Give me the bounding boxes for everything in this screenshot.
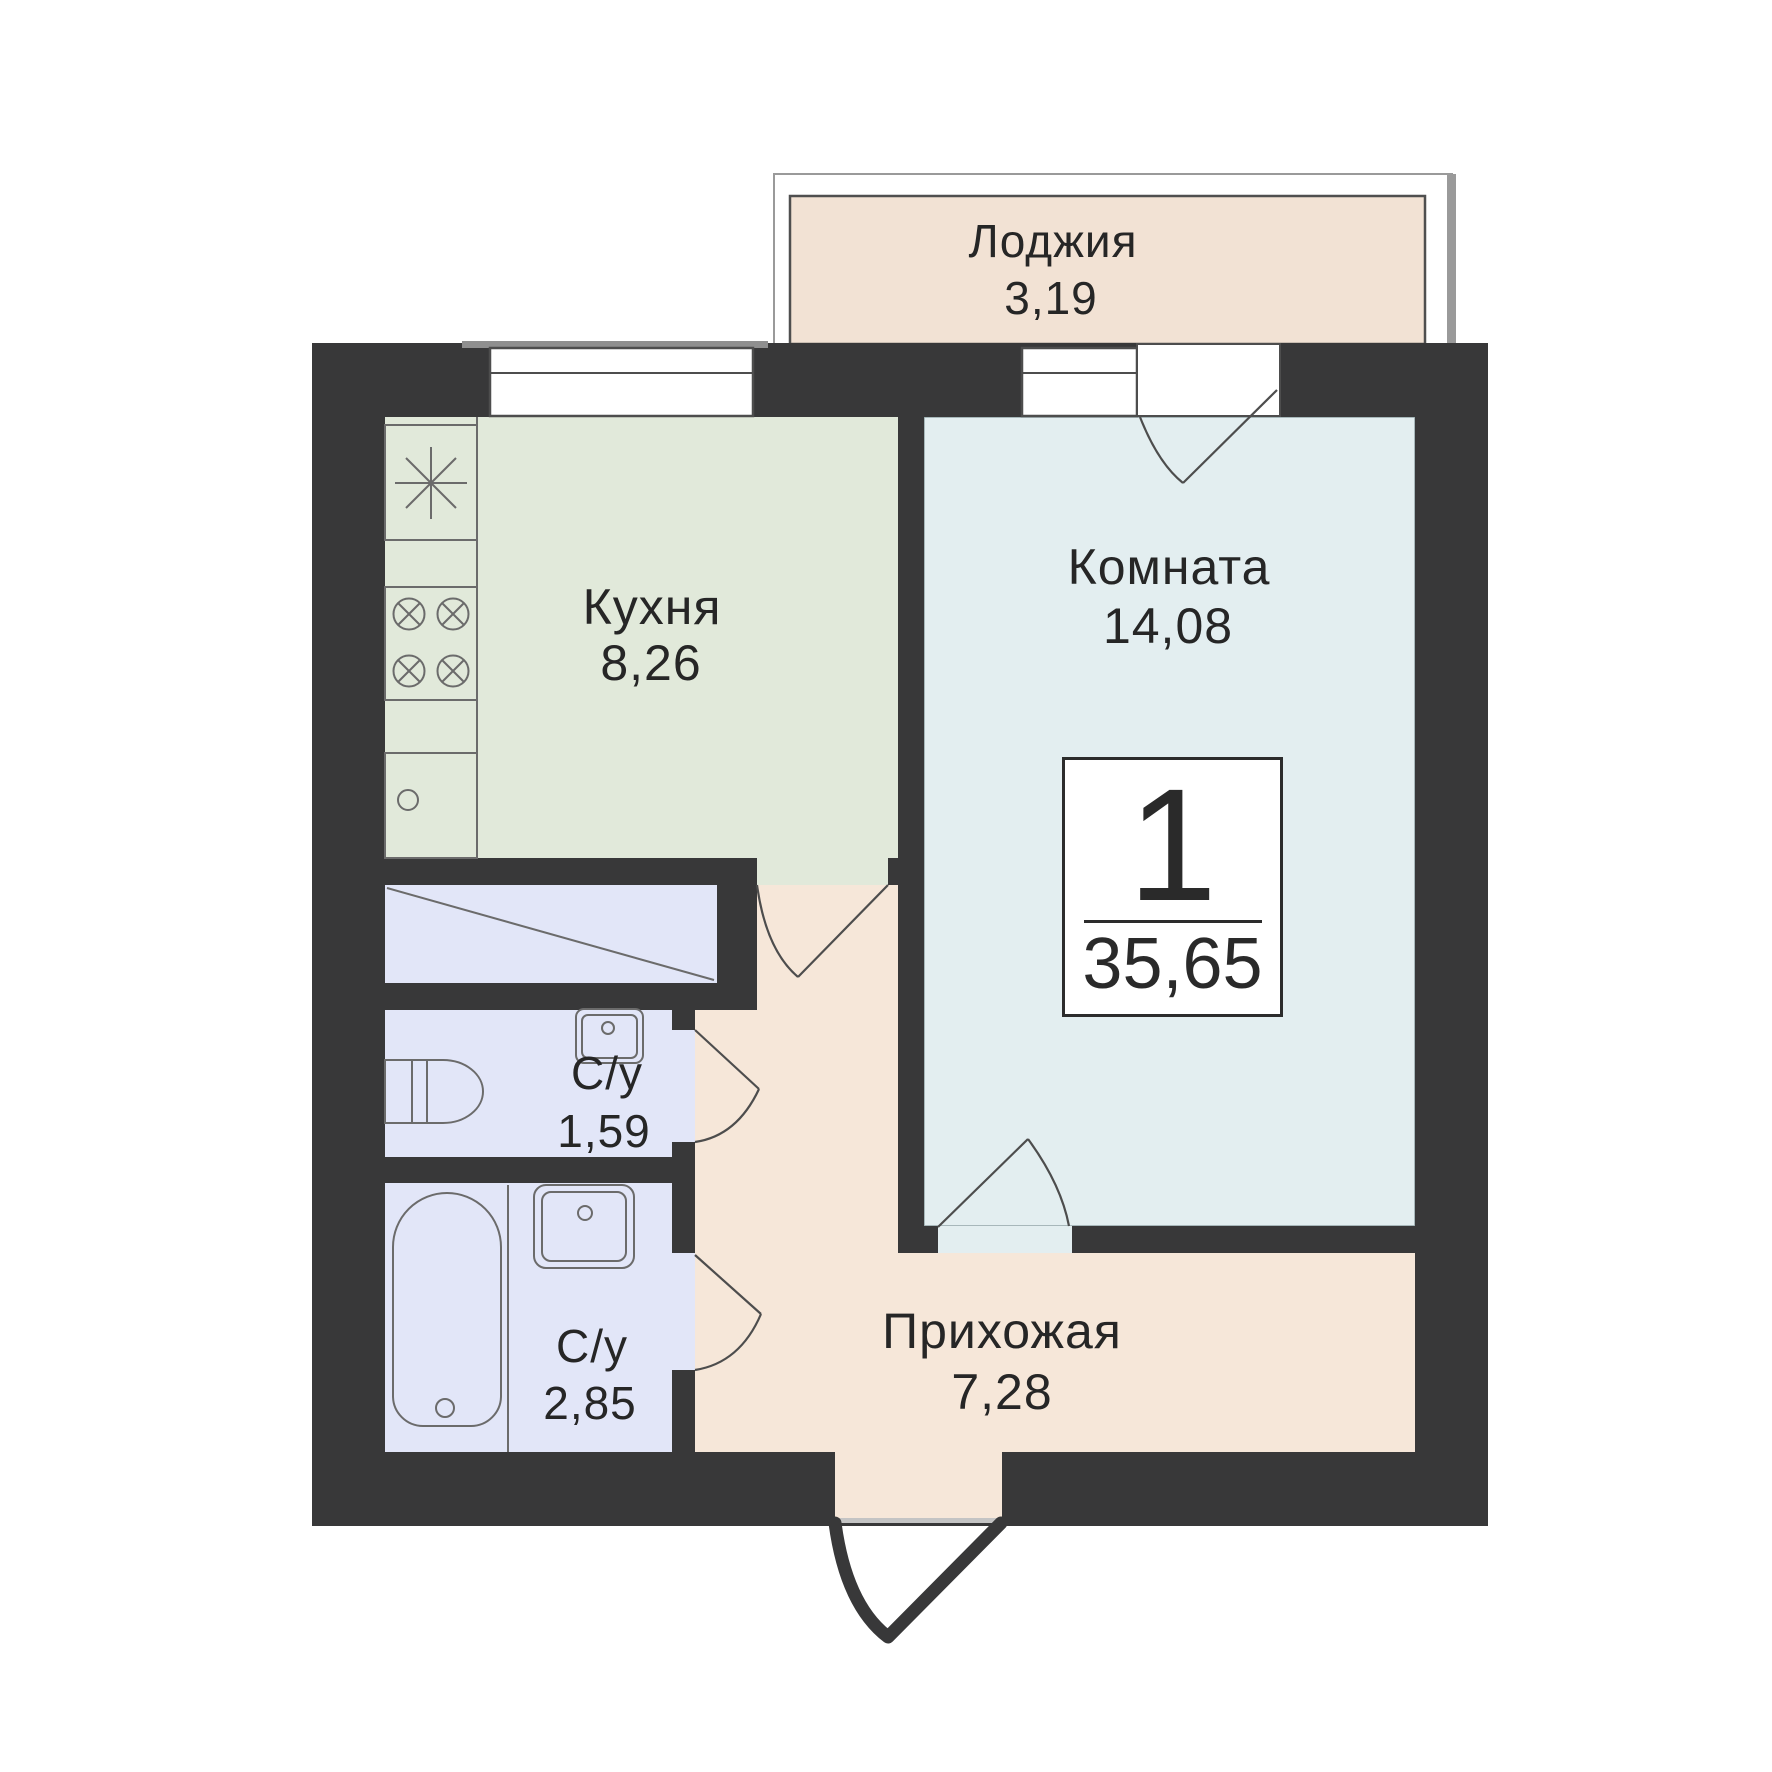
area-label-bathroom-large: 2,85	[543, 1380, 637, 1426]
wall-room-bottom-left	[898, 1226, 938, 1253]
kitchen-window-icon	[490, 348, 753, 416]
room-label-loggia: Лоджия	[969, 218, 1138, 264]
wall-kitchen-room	[898, 417, 924, 1253]
badge-rooms-count: 1	[1128, 780, 1217, 910]
room-label-kitchen: Кухня	[583, 582, 722, 632]
entrance-opening	[835, 1452, 1002, 1523]
balcony-door-opening	[1137, 344, 1280, 416]
floor-plan-drawing	[0, 0, 1772, 1772]
wall-storage-bottom	[312, 983, 757, 1010]
apartment-badge: 1 35,65	[1062, 757, 1283, 1017]
room-label-living-room: Комната	[1068, 542, 1271, 592]
wall-bathroom-large-jamb-top	[672, 1183, 695, 1253]
area-label-hallway: 7,28	[951, 1367, 1052, 1417]
room-door-threshold	[938, 1226, 1072, 1253]
wall-kitchen-bottom	[312, 858, 757, 885]
area-label-loggia: 3,19	[1004, 275, 1098, 321]
room-label-bathroom-large: С/у	[556, 1323, 628, 1369]
wall-bathrooms-divider	[312, 1157, 695, 1183]
floor-plan: Лоджия 3,19 Кухня 8,26 Комната 14,08 С/у…	[0, 0, 1772, 1772]
wall-right	[1415, 343, 1488, 1526]
room-label-hallway: Прихожая	[882, 1306, 1122, 1356]
entrance-door-icon	[835, 1523, 1001, 1637]
area-label-living-room: 14,08	[1103, 601, 1233, 651]
wall-bathroom-large-jamb-bottom	[672, 1370, 695, 1452]
wall-left	[312, 343, 385, 1526]
badge-total-area: 35,65	[1082, 933, 1262, 995]
badge-divider	[1084, 920, 1262, 923]
bathroom-large-threshold	[672, 1253, 695, 1370]
room-window-icon	[1022, 348, 1137, 416]
wall-bathroom-small-jamb-bottom	[672, 1142, 695, 1157]
wall-room-bottom-right	[1072, 1226, 1415, 1253]
bathroom-small-threshold	[672, 1030, 695, 1142]
area-label-kitchen: 8,26	[600, 638, 701, 688]
entrance-threshold	[835, 1518, 1002, 1523]
wall-kitchen-door-jamb	[888, 858, 898, 885]
wall-bathroom-small-jamb-top	[672, 1010, 695, 1030]
room-label-bathroom-small: С/у	[571, 1050, 643, 1096]
area-label-bathroom-small: 1,59	[557, 1108, 651, 1154]
wall-top	[312, 343, 1488, 417]
